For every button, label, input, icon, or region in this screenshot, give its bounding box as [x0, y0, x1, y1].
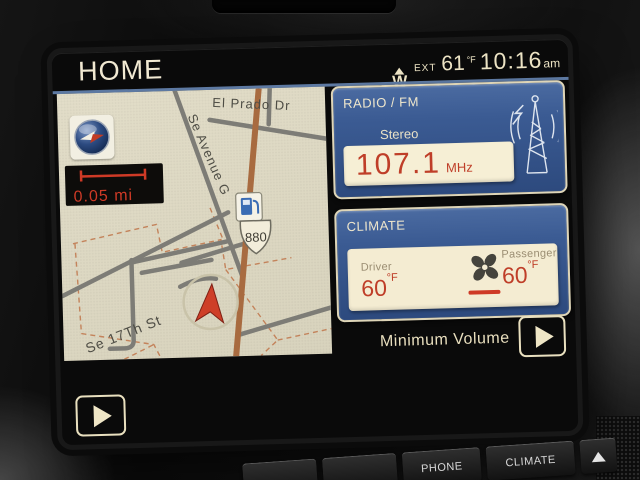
next-page-button[interactable] [518, 315, 566, 357]
navigation-map-panel[interactable]: El Prado Dr Se Avenue G Se 17Th St 880 [57, 87, 332, 361]
radio-mode-label: Stereo [380, 126, 419, 142]
exterior-temp-label: EXT [414, 63, 437, 75]
map-scale-widget: 0.05 mi [65, 163, 164, 206]
climate-panel[interactable]: CLIMATE Driver 60°F [334, 203, 571, 322]
climate-hard-button[interactable]: CLIMATE [486, 441, 576, 480]
driver-temp-unit: °F [386, 272, 397, 284]
fuel-station-icon [236, 192, 263, 221]
phone-hard-button[interactable]: PHONE [402, 447, 482, 480]
eject-hard-button[interactable] [579, 438, 617, 474]
climate-display: Driver 60°F Passenger [347, 243, 559, 311]
frequency-value: 107.1 [355, 145, 441, 183]
clock-meridiem: am [543, 56, 560, 70]
scale-bar-icon [73, 166, 153, 182]
frequency-display[interactable]: 107.1 MHz [343, 141, 514, 186]
driver-temp-value: 60 [361, 275, 387, 302]
eject-icon [591, 451, 606, 462]
exterior-temp-value: 61 [441, 52, 465, 77]
hard-button-strip: PHONE CLIMATE [242, 434, 640, 480]
compass-rose-icon [72, 118, 111, 157]
previous-page-button[interactable] [75, 394, 126, 436]
clock: 10:16 [479, 47, 542, 76]
fan-icon [467, 250, 502, 285]
vehicle-marker-icon [196, 283, 226, 323]
map-compass-widget[interactable] [69, 115, 114, 160]
passenger-temp-value: 60 [502, 262, 528, 289]
hard-button-blank[interactable] [322, 453, 398, 480]
radio-panel[interactable]: RADIO / FM Stereo 107.1 MHz [331, 80, 568, 199]
driver-temp-control[interactable]: Driver 60°F [361, 261, 399, 300]
passenger-temp-control[interactable]: Passenger 60°F [501, 247, 557, 286]
radio-panel-title: RADIO / FM [343, 94, 419, 111]
infotainment-screen: HOME W EXT 61 °F 10:16 am [52, 39, 579, 445]
climate-panel-title: CLIMATE [346, 217, 405, 234]
passenger-temp-unit: °F [527, 259, 538, 271]
page-title: HOME [78, 54, 164, 87]
frequency-unit: MHz [446, 160, 473, 176]
map-scale-label: 0.05 mi [73, 186, 163, 207]
right-arrow-icon [93, 404, 112, 426]
highway-shield-number: 880 [245, 229, 267, 245]
fan-speed-indicator[interactable] [467, 250, 502, 295]
exterior-temp-unit: °F [466, 54, 475, 64]
hard-button-blank[interactable] [242, 459, 318, 480]
cd-slot [212, 0, 396, 13]
fan-speed-bar [468, 290, 500, 295]
right-arrow-icon [535, 325, 554, 347]
street-label-el-prado: El Prado Dr [212, 95, 291, 113]
